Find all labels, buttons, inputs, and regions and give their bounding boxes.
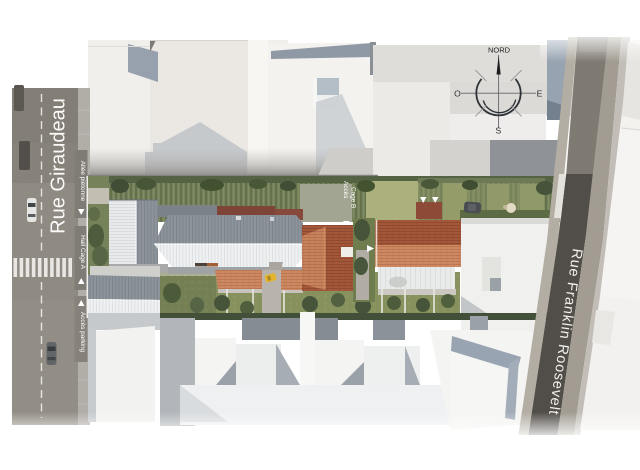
svg-text:S: S [496, 126, 502, 136]
svg-text:E: E [537, 89, 543, 99]
svg-text:Cage B: Cage B [350, 187, 357, 208]
svg-text:Accès: Accès [342, 181, 349, 198]
svg-text:O: O [454, 89, 461, 99]
svg-text:Accès parking: Accès parking [79, 312, 86, 353]
svg-text:Allée piétonne: Allée piétonne [79, 161, 86, 202]
svg-text:Rue Giraudeau: Rue Giraudeau [48, 98, 70, 234]
svg-text:Hall Cage A: Hall Cage A [79, 235, 86, 269]
svg-text:NORD: NORD [488, 46, 511, 55]
